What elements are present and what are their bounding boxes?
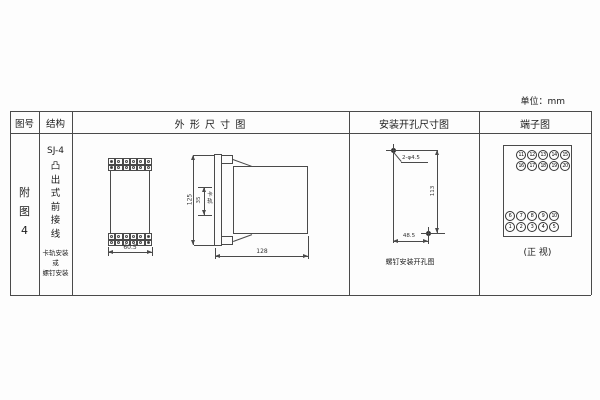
terminal-3: 3 <box>527 222 537 232</box>
terminal-7: 7 <box>516 211 526 221</box>
terminal-12: 12 <box>527 150 537 160</box>
dim-line-width <box>108 252 152 253</box>
table-right-border <box>591 111 592 295</box>
side-view-top-step <box>221 155 233 164</box>
arrowhead <box>191 240 195 245</box>
header-structure: 结构 <box>39 116 72 130</box>
side-view-bottom-step <box>221 236 233 245</box>
terminal-19: 19 <box>549 161 559 171</box>
arrowhead <box>393 239 398 243</box>
dim-horizontal: 48.5 <box>393 233 425 239</box>
dim-depth: 128 <box>240 248 284 255</box>
holes-label: 2-φ4.5 <box>402 155 420 161</box>
terminal-18: 18 <box>538 161 548 171</box>
arrowhead <box>215 254 220 258</box>
structure-mounting-note: 卡轨安装或螺钉安装 <box>39 248 72 278</box>
table-divider-3 <box>349 111 350 295</box>
header-outline: 外 形 尺 寸 图 <box>72 116 349 131</box>
arrowhead <box>202 210 206 215</box>
terminal-2: 2 <box>516 222 526 232</box>
dim-rail-slot: 35 <box>196 192 202 208</box>
leader-line <box>393 152 401 162</box>
terminal-5: 5 <box>549 222 559 232</box>
terminal-caption: (正 视) <box>503 245 572 258</box>
terminal-9: 9 <box>538 211 548 221</box>
mounting-caption: 螺钉安装开孔图 <box>374 257 446 267</box>
header-mounting: 安装开孔尺寸图 <box>349 116 479 131</box>
side-view-case <box>233 166 308 234</box>
unit-label: 单位：mm <box>490 94 565 107</box>
ext-line <box>194 155 215 156</box>
table-top-border <box>10 111 591 112</box>
ext-line <box>308 236 309 259</box>
arrowhead <box>423 239 428 243</box>
terminal-13: 13 <box>538 150 548 160</box>
structure-model: SJ-4 <box>39 146 72 156</box>
datasheet-page: 单位：mm 图号 结构 外 形 尺 寸 图 安装开孔尺寸图 端子图 附图4 SJ… <box>0 0 600 400</box>
figure-number: 附图4 <box>10 183 39 240</box>
ext-line <box>152 247 153 256</box>
terminal-1: 1 <box>505 222 515 232</box>
arrowhead <box>191 155 195 160</box>
dim-side-height: 125 <box>187 190 194 210</box>
dim-vertical: 113 <box>430 183 436 199</box>
header-figure-no: 图号 <box>10 116 39 130</box>
table-divider-4 <box>479 111 480 295</box>
arrowhead <box>303 254 308 258</box>
table-bottom-border <box>10 295 591 296</box>
side-view-bottom-latch <box>233 234 252 242</box>
arrowhead <box>435 150 439 155</box>
terminal-4: 4 <box>538 222 548 232</box>
terminal-6: 6 <box>505 211 515 221</box>
terminal-15: 15 <box>560 150 570 160</box>
ext-line <box>198 215 212 216</box>
terminal-row-upper-1: 1112131415 <box>516 150 571 160</box>
ext-line <box>393 155 394 243</box>
header-terminals: 端子图 <box>479 116 591 131</box>
leader-underline <box>401 162 428 163</box>
terminal-11: 11 <box>516 150 526 160</box>
table-divider-2 <box>72 111 73 295</box>
terminal-8: 8 <box>527 211 537 221</box>
ext-line <box>194 245 215 246</box>
dim-line-depth <box>215 256 308 257</box>
side-view-front-flange <box>214 154 222 246</box>
front-view-body <box>110 170 150 234</box>
structure-type: 凸出式前接线 <box>39 160 72 241</box>
terminal-20: 20 <box>560 161 570 171</box>
terminal-17: 17 <box>527 161 537 171</box>
dim-line-vertical <box>437 150 438 233</box>
hole-crosshair <box>428 227 429 239</box>
terminal-row-upper-2: 1617181920 <box>516 161 571 171</box>
dim-front-width: 60.5 <box>108 244 152 251</box>
rail-slot-label: 卡轨 <box>206 192 214 206</box>
terminal-row-lower-1: 678910 <box>505 211 560 221</box>
terminal-row-lower-2: 12345 <box>505 222 560 232</box>
table-header-border <box>10 133 591 134</box>
top-reference-line <box>393 150 437 151</box>
terminal-14: 14 <box>549 150 559 160</box>
ext-line <box>428 239 429 244</box>
terminal-10: 10 <box>549 211 559 221</box>
terminal-16: 16 <box>516 161 526 171</box>
